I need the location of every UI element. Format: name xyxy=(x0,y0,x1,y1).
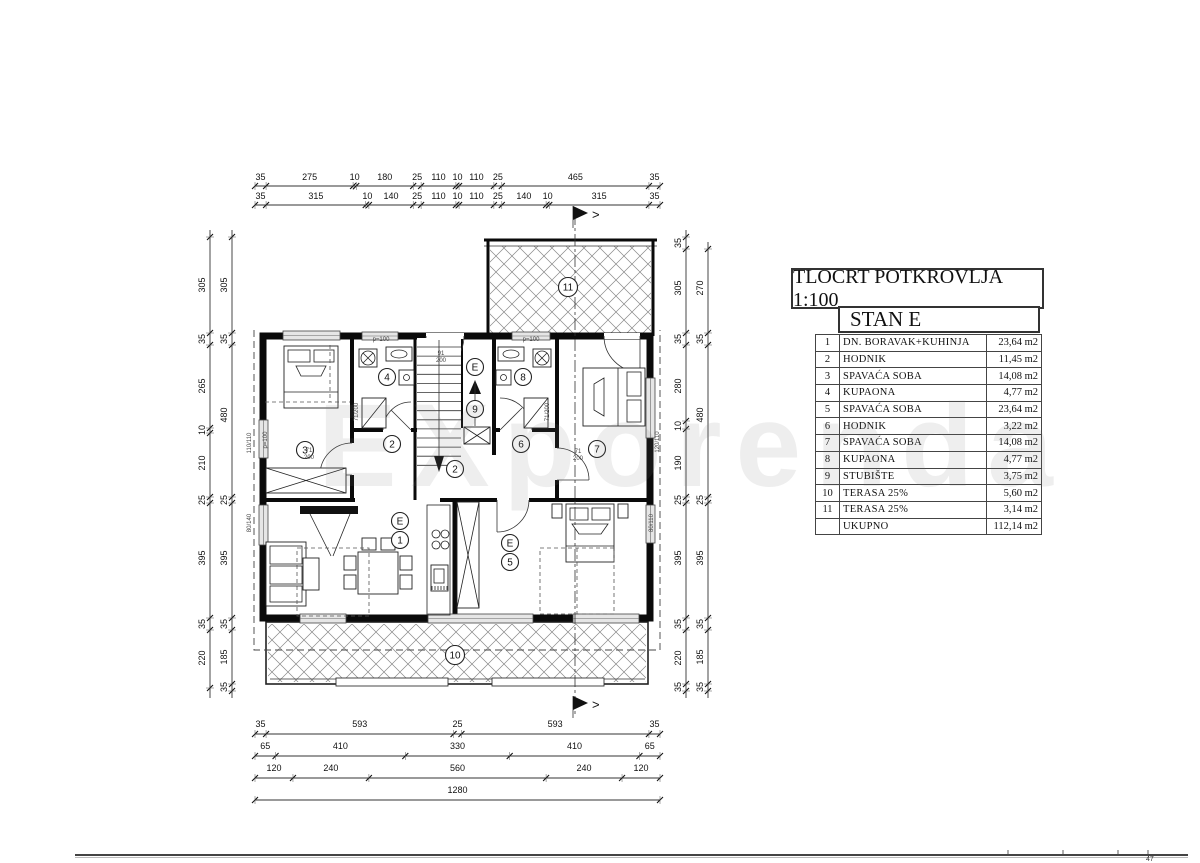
dim-column: 27035480253953518535 xyxy=(695,242,712,698)
area-row: 6HODNIK3,22 m2 xyxy=(816,418,1042,435)
room-number: 5 xyxy=(507,558,513,569)
area-cell-area: 4,77 m2 xyxy=(987,451,1042,468)
footer-rule-secondary xyxy=(75,857,1188,858)
chair-icon xyxy=(400,575,412,589)
area-row: UKUPNO112,14 m2 xyxy=(816,518,1042,535)
area-cell-area: 112,14 m2 xyxy=(987,518,1042,535)
room-marker: 4 xyxy=(379,369,396,386)
window xyxy=(259,505,268,545)
dim-label: 10 xyxy=(673,421,683,431)
bathroom-8 xyxy=(496,347,551,428)
nightstand-icon xyxy=(552,504,562,518)
dim-label: 35 xyxy=(649,172,659,182)
chair-icon xyxy=(400,556,412,570)
dim-label: 395 xyxy=(673,550,683,565)
area-row: 5SPAVAĆA SOBA23,64 m2 xyxy=(816,401,1042,418)
washbasin-icon xyxy=(498,347,524,361)
window xyxy=(300,614,346,623)
dim-column: 30535265102102539535220 xyxy=(197,230,214,698)
living-kitchen-1 xyxy=(266,505,450,616)
dim-label: 25 xyxy=(673,495,683,505)
size-annotation: 200 xyxy=(573,456,584,462)
dim-label: 120 xyxy=(634,763,649,773)
area-cell-num: 3 xyxy=(816,368,840,385)
size-annotation: 71/200 xyxy=(354,402,360,421)
dim-label: 10 xyxy=(452,172,462,182)
room-number: E xyxy=(397,517,404,528)
dim-label: 25 xyxy=(695,495,705,505)
dim-label: 395 xyxy=(219,550,229,565)
dim-label: 35 xyxy=(256,172,266,182)
dim-label: 395 xyxy=(197,550,207,565)
boiler-icon xyxy=(399,370,414,385)
dim-label: 220 xyxy=(673,650,683,665)
room-marker: 6 xyxy=(513,436,530,453)
door-leaf xyxy=(500,408,522,430)
dim-label: 305 xyxy=(219,277,229,292)
area-cell-name: HODNIK xyxy=(840,418,987,435)
dim-label: 110 xyxy=(469,172,483,182)
room-marker: 2 xyxy=(384,436,401,453)
dim-label: 35 xyxy=(695,334,705,344)
dim-label: 465 xyxy=(568,172,583,182)
dim-label: 185 xyxy=(219,649,229,664)
area-cell-num: 7 xyxy=(816,435,840,452)
dim-label: 65 xyxy=(645,741,655,751)
washbasin-icon xyxy=(386,347,412,361)
room-number: 1 xyxy=(397,536,403,547)
size-annotation: p=100 xyxy=(263,431,269,449)
area-row: 3SPAVAĆA SOBA14,08 m2 xyxy=(816,368,1042,385)
dim-label: 35 xyxy=(219,619,229,629)
section-glyph: > xyxy=(592,207,600,222)
area-row: 8KUPAONA4,77 m2 xyxy=(816,451,1042,468)
area-cell-num: 8 xyxy=(816,451,840,468)
area-cell-area: 5,60 m2 xyxy=(987,485,1042,502)
dim-label: 110 xyxy=(469,191,483,201)
dim-label: 240 xyxy=(323,763,338,773)
dim-label: 210 xyxy=(197,455,207,470)
dim-label: 25 xyxy=(493,191,503,201)
window xyxy=(283,331,340,340)
dim-label: 120 xyxy=(266,763,281,773)
area-cell-area: 3,14 m2 xyxy=(987,501,1042,518)
dim-label: 140 xyxy=(384,191,399,201)
chair-icon xyxy=(344,556,356,570)
room-marker: 11 xyxy=(559,278,578,297)
room-marker: E xyxy=(502,535,519,552)
dim-label: 275 xyxy=(302,172,317,182)
room-marker: 2 xyxy=(447,461,464,478)
size-annotation: 80/140 xyxy=(247,513,253,532)
dim-label: 35 xyxy=(673,682,683,692)
dim-label: 25 xyxy=(412,172,422,182)
dim-label: 315 xyxy=(308,191,323,201)
dim-label: 10 xyxy=(350,172,360,182)
dim-label: 35 xyxy=(197,334,207,344)
section-glyph: > xyxy=(592,697,600,712)
room-number: E xyxy=(472,363,479,374)
area-cell-num: 11 xyxy=(816,501,840,518)
area-cell-name: DN. BORAVAK+KUHINJA xyxy=(840,335,987,352)
dim-label: 410 xyxy=(333,741,348,751)
size-annotation: 120/110 xyxy=(655,431,661,453)
area-row: 10TERASA 25%5,60 m2 xyxy=(816,485,1042,502)
boiler-icon xyxy=(496,370,511,385)
dim-label: 35 xyxy=(649,719,659,729)
dim-label: 10 xyxy=(362,191,372,201)
dim-label: 35 xyxy=(695,682,705,692)
dim-label: 35 xyxy=(256,719,266,729)
area-table: 1DN. BORAVAK+KUHINJA23,64 m22HODNIK11,45… xyxy=(815,334,1042,535)
dim-column: 30535480253953518535 xyxy=(219,230,236,698)
dim-row: 1280 xyxy=(252,785,663,804)
room-number: 2 xyxy=(389,440,395,451)
chair-icon xyxy=(344,575,356,589)
dim-label: 10 xyxy=(543,191,553,201)
dim-label: 35 xyxy=(256,191,266,201)
room-marker: E xyxy=(467,359,484,376)
dining-table-icon xyxy=(358,552,398,594)
dim-label: 330 xyxy=(450,741,465,751)
size-annotation: 71 xyxy=(575,449,582,455)
dim-label: 305 xyxy=(197,277,207,292)
bedroom-5 xyxy=(457,502,628,614)
area-cell-name: KUPAONA xyxy=(840,385,987,402)
room-number: 2 xyxy=(452,465,458,476)
area-cell-area: 14,08 m2 xyxy=(987,368,1042,385)
dim-row: 355932559335 xyxy=(252,719,663,738)
area-cell-name: HODNIK xyxy=(840,351,987,368)
dim-label: 25 xyxy=(412,191,422,201)
area-cell-area: 3,22 m2 xyxy=(987,418,1042,435)
dim-label: 110 xyxy=(431,191,445,201)
dim-label: 593 xyxy=(352,719,367,729)
area-cell-num: 4 xyxy=(816,385,840,402)
section-flag-icon xyxy=(573,206,588,220)
dim-row: 352751018025110101102546535 xyxy=(252,172,663,190)
dim-label: 25 xyxy=(452,719,462,729)
page-number: 47 xyxy=(1146,856,1154,863)
area-cell-area: 23,64 m2 xyxy=(987,401,1042,418)
dim-label: 240 xyxy=(577,763,592,773)
area-cell-num: 6 xyxy=(816,418,840,435)
dim-label: 35 xyxy=(673,238,683,248)
area-cell-num: 2 xyxy=(816,351,840,368)
area-row: 1DN. BORAVAK+KUHINJA23,64 m2 xyxy=(816,335,1042,352)
dim-column: 353053528010190253953522035 xyxy=(673,230,690,698)
kitchen-counter-icon xyxy=(427,505,450,615)
dim-label: 25 xyxy=(197,495,207,505)
dim-label: 305 xyxy=(673,280,683,295)
size-annotation: 110/110 xyxy=(247,432,253,453)
area-row: 4KUPAONA4,77 m2 xyxy=(816,385,1042,402)
area-cell-area: 14,08 m2 xyxy=(987,435,1042,452)
bed-icon xyxy=(566,504,614,562)
window xyxy=(573,614,639,623)
size-annotation: 91 xyxy=(438,351,445,357)
tv-icon xyxy=(300,506,358,514)
dim-label: 35 xyxy=(219,334,229,344)
area-row: 11TERASA 25%3,14 m2 xyxy=(816,501,1042,518)
area-cell-name: SPAVAĆA SOBA xyxy=(840,435,987,452)
dim-label: 560 xyxy=(450,763,465,773)
plan-title: TLOCRT POTKROVLJA 1:100 xyxy=(791,268,1044,309)
section-flag-icon xyxy=(573,696,588,710)
area-cell-name: TERASA 25% xyxy=(840,485,987,502)
dim-label: 480 xyxy=(695,407,705,422)
dim-label: 280 xyxy=(673,378,683,393)
dim-label: 410 xyxy=(567,741,582,751)
dim-label: 140 xyxy=(516,191,531,201)
dim-label: 190 xyxy=(673,455,683,470)
room-marker: E xyxy=(392,513,409,530)
dim-label: 65 xyxy=(260,741,270,751)
footer-rule xyxy=(75,854,1188,856)
room-marker: 5 xyxy=(502,554,519,571)
dim-row: 6541033041065 xyxy=(252,741,663,760)
dim-label: 10 xyxy=(452,191,462,201)
dim-label: 220 xyxy=(197,650,207,665)
dim-label: 185 xyxy=(695,649,705,664)
room-number: 6 xyxy=(518,440,524,451)
area-cell-area: 3,75 m2 xyxy=(987,468,1042,485)
dim-label: 35 xyxy=(649,191,659,201)
area-row: 2HODNIK11,45 m2 xyxy=(816,351,1042,368)
bedroom-7 xyxy=(583,368,645,426)
size-annotation: 200 xyxy=(436,358,447,364)
room-number: 10 xyxy=(449,651,461,662)
area-cell-num: 9 xyxy=(816,468,840,485)
dim-label: 35 xyxy=(197,619,207,629)
page: EXporenda xyxy=(0,0,1200,863)
area-cell-area: 23,64 m2 xyxy=(987,335,1042,352)
dim-label: 25 xyxy=(493,172,503,182)
dim-label: 480 xyxy=(219,407,229,422)
area-cell-num: 5 xyxy=(816,401,840,418)
coffee-table-icon xyxy=(303,558,319,590)
size-annotation: 80/110 xyxy=(649,513,655,532)
window xyxy=(646,378,655,438)
room-marker: 10 xyxy=(446,646,465,665)
area-cell-num: 10 xyxy=(816,485,840,502)
area-cell-area: 11,45 m2 xyxy=(987,351,1042,368)
dim-row: 35315101402511010110251401031535 xyxy=(252,191,663,209)
dim-label: 395 xyxy=(695,550,705,565)
unit-title: STAN E xyxy=(838,306,1040,333)
area-cell-name: SPAVAĆA SOBA xyxy=(840,368,987,385)
size-annotation: 71/200 xyxy=(545,402,551,421)
size-annotation: 71 xyxy=(306,448,313,454)
bedroom-3 xyxy=(265,345,350,493)
area-cell-name: SPAVAĆA SOBA xyxy=(840,401,987,418)
area-cell-num: 1 xyxy=(816,335,840,352)
dim-label: 180 xyxy=(377,172,392,182)
room-number: 9 xyxy=(472,405,478,416)
area-cell-area: 4,77 m2 xyxy=(987,385,1042,402)
dim-label: 270 xyxy=(695,280,705,295)
area-cell-num xyxy=(816,518,840,535)
size-annotation: p=100 xyxy=(373,337,391,343)
dim-label: 110 xyxy=(431,172,445,182)
area-cell-name: STUBIŠTE xyxy=(840,468,987,485)
dim-label: 25 xyxy=(219,495,229,505)
room-number: 8 xyxy=(520,373,526,384)
room-number: 11 xyxy=(563,283,574,294)
room-number: E xyxy=(507,539,514,550)
area-row: 9STUBIŠTE3,75 m2 xyxy=(816,468,1042,485)
dim-label: 1280 xyxy=(447,785,467,795)
area-cell-name: UKUPNO xyxy=(840,518,987,535)
room-marker: 1 xyxy=(392,532,409,549)
dim-label: 35 xyxy=(673,334,683,344)
bed-icon xyxy=(583,368,645,426)
area-row: 7SPAVAĆA SOBA14,08 m2 xyxy=(816,435,1042,452)
dim-label: 265 xyxy=(197,378,207,393)
room-marker: 7 xyxy=(589,441,606,458)
room-marker: 8 xyxy=(515,369,532,386)
dim-label: 315 xyxy=(592,191,607,201)
size-annotation: 200 xyxy=(304,455,315,461)
area-cell-name: TERASA 25% xyxy=(840,501,987,518)
dim-label: 35 xyxy=(219,682,229,692)
sofa-icon xyxy=(266,542,306,606)
dim-label: 10 xyxy=(197,425,207,435)
area-cell-name: KUPAONA xyxy=(840,451,987,468)
dim-label: 35 xyxy=(673,619,683,629)
dim-label: 593 xyxy=(548,719,563,729)
room-marker: 9 xyxy=(467,401,484,418)
room-number: 7 xyxy=(594,445,600,456)
nightstand-icon xyxy=(618,504,628,518)
dim-row: 120240560240120 xyxy=(252,763,663,782)
size-annotation: p=100 xyxy=(523,337,541,343)
room-number: 4 xyxy=(384,373,390,384)
dim-label: 35 xyxy=(695,619,705,629)
